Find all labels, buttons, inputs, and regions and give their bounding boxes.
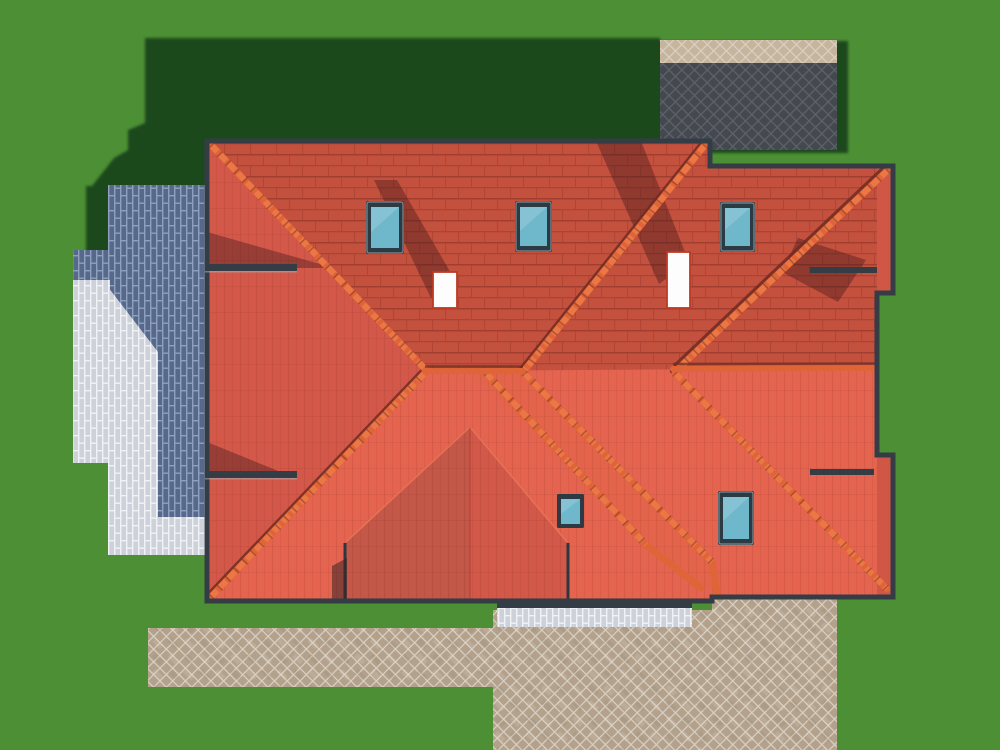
chimney <box>667 252 690 308</box>
bottom-walkway <box>148 628 493 687</box>
top-right-pavers <box>660 40 837 150</box>
skylight <box>515 201 552 252</box>
south-terrace-strip <box>497 608 692 627</box>
skylight <box>557 494 584 528</box>
house-shadow-west-lower <box>86 186 110 258</box>
east-step-eave-lower <box>810 469 874 475</box>
west-notch-eave-lower <box>205 471 297 478</box>
skylight <box>718 491 754 545</box>
main-ridge-east <box>673 368 876 369</box>
scene-render: Aerial top-down 3D architectural renderi… <box>0 0 1000 750</box>
east-step-eave-upper <box>810 267 877 273</box>
house-roof <box>205 141 893 608</box>
chimney <box>433 272 457 308</box>
west-notch-eave-upper <box>205 264 297 271</box>
terrace-eave <box>497 602 692 608</box>
skylight <box>720 202 755 252</box>
skylight <box>366 201 404 254</box>
render-viewport[interactable]: Aerial top-down 3D architectural renderi… <box>0 0 1000 750</box>
